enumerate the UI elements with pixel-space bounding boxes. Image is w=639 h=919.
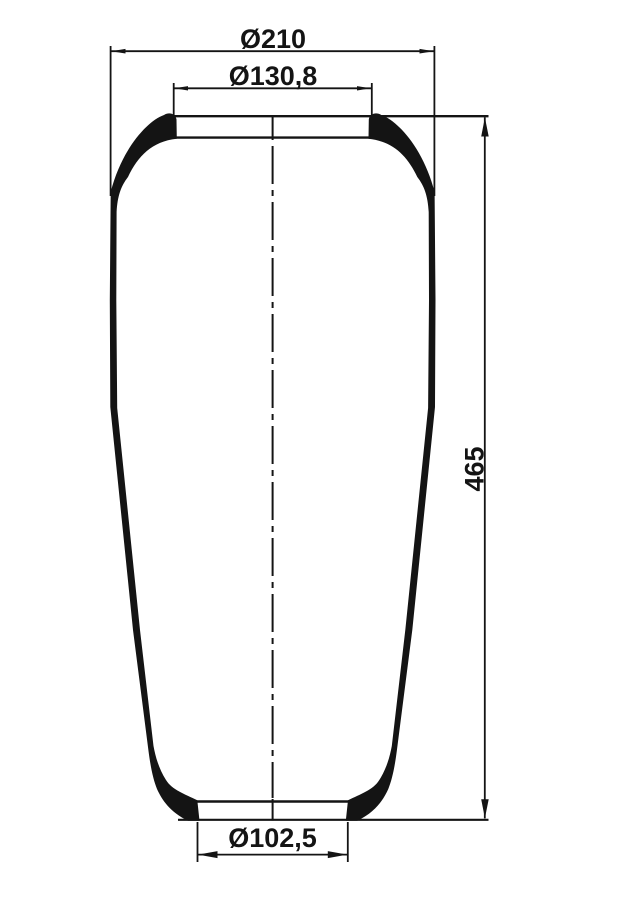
svg-text:465: 465 — [460, 446, 490, 491]
svg-text:Ø102,5: Ø102,5 — [228, 823, 317, 853]
svg-text:Ø130,8: Ø130,8 — [229, 61, 318, 91]
svg-text:Ø210: Ø210 — [240, 24, 306, 54]
